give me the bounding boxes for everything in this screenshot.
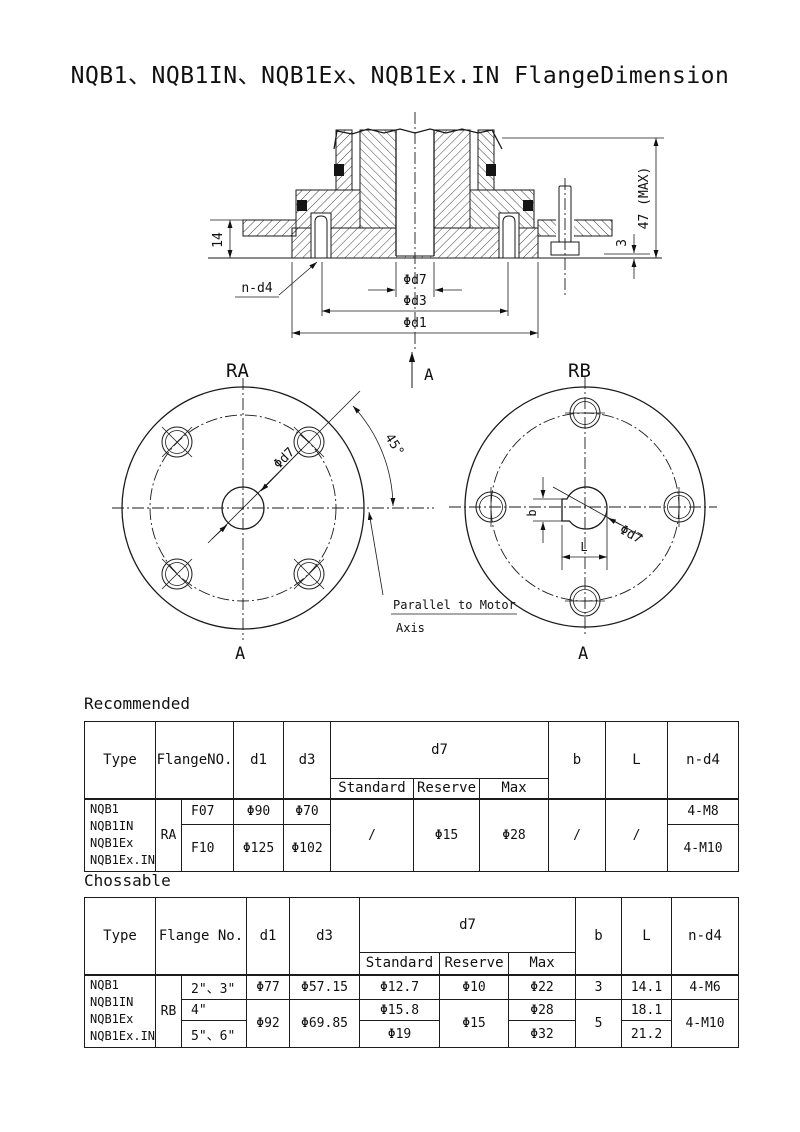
rec-standard: / xyxy=(331,799,414,872)
cho-row3-l: 21.2 xyxy=(622,1021,672,1048)
rec-f07-nd4: 4-M8 xyxy=(668,799,739,825)
rb-dim-l: L xyxy=(562,511,607,570)
rec-header-reserve: Reserve xyxy=(414,779,480,799)
rec-header-d3: d3 xyxy=(284,722,331,799)
cho-row3-standard: Φ19 xyxy=(360,1021,440,1048)
rec-max: Φ28 xyxy=(480,799,549,872)
rec-f10-nd4: 4-M10 xyxy=(668,825,739,872)
rec-b: / xyxy=(549,799,606,872)
dim-phi-d7-label: Φd7 xyxy=(403,273,426,288)
rec-header-l: L xyxy=(606,722,668,799)
rec-header-d1: d1 xyxy=(234,722,284,799)
seal-lower-right xyxy=(523,200,533,211)
hub-right xyxy=(434,130,470,228)
type-line: NQB1IN xyxy=(90,994,155,1011)
ra-phi-d7-label: Φd7 xyxy=(271,445,298,472)
seal-lower-left xyxy=(297,200,307,211)
cho-row3-flange: 5"、6" xyxy=(182,1021,247,1048)
ra-title: RA xyxy=(226,360,249,382)
cross-section-view: 14 n-d4 Φd7 Φd3 xyxy=(208,112,664,388)
cho-header-n-d4: n-d4 xyxy=(672,898,739,975)
technical-drawing: 14 n-d4 Φd7 Φd3 xyxy=(0,0,800,690)
dim-3-label: 3 xyxy=(615,239,630,247)
cho-rows23-reserve: Φ15 xyxy=(440,1000,509,1048)
cho-row1-max: Φ22 xyxy=(509,975,576,1000)
cho-header-b: b xyxy=(576,898,622,975)
type-line: NQB1Ex xyxy=(90,835,155,852)
parallel-note-line1: Parallel to Motor xyxy=(393,598,516,612)
table-row: 5"、6" Φ19 Φ32 21.2 xyxy=(85,1021,739,1048)
parallel-note-line2: Axis xyxy=(396,621,425,635)
cho-row1-flange: 2"、3" xyxy=(182,975,247,1000)
cho-type-cell: NQB1 NQB1IN NQB1Ex NQB1Ex.IN xyxy=(85,975,156,1048)
dim-3: 3 xyxy=(604,234,650,279)
housing-upper-left xyxy=(336,130,352,190)
cho-row1-reserve: Φ10 xyxy=(440,975,509,1000)
cho-header-type: Type xyxy=(85,898,156,975)
rb-dim-l-label: L xyxy=(580,540,587,554)
recommended-caption: Recommended xyxy=(84,694,190,713)
cho-header-flange-no: Flange No. xyxy=(156,898,247,975)
rec-header-standard: Standard xyxy=(331,779,414,799)
bolt-left xyxy=(315,216,327,258)
cho-header-l: L xyxy=(622,898,672,975)
parallel-note: Parallel to Motor Axis xyxy=(369,512,517,635)
seal-upper-right xyxy=(486,164,496,176)
type-line: NQB1Ex xyxy=(90,1011,155,1028)
cho-row1-b: 3 xyxy=(576,975,622,1000)
rec-header-d7: d7 xyxy=(331,722,549,779)
mount-tab-right xyxy=(538,220,612,236)
rec-f10-d3: Φ102 xyxy=(284,825,331,872)
cho-rows23-b: 5 xyxy=(576,1000,622,1048)
rb-dim-phi-d7: Φd7 xyxy=(553,487,645,547)
document-page: NQB1、NQB1IN、NQB1Ex、NQB1Ex.IN FlangeDimen… xyxy=(0,0,800,1132)
rb-view: RB b xyxy=(449,360,717,664)
type-line: NQB1Ex.IN xyxy=(90,1028,155,1045)
dim-14: 14 xyxy=(210,220,247,258)
type-line: NQB1 xyxy=(90,977,155,994)
cho-header-standard: Standard xyxy=(360,953,440,975)
rec-header-b: b xyxy=(549,722,606,799)
recommended-table: Type FlangeNO. d1 d3 d7 b L n-d4 Standar… xyxy=(84,721,739,872)
n-d4-label: n-d4 xyxy=(241,281,272,296)
rec-group-cell: RA xyxy=(156,799,182,872)
dim-14-label: 14 xyxy=(211,232,226,248)
cho-header-d3: d3 xyxy=(290,898,360,975)
cho-row2-max: Φ28 xyxy=(509,1000,576,1021)
table-row: 4" Φ92 Φ69.85 Φ15.8 Φ15 Φ28 5 18.1 4-M10 xyxy=(85,1000,739,1021)
chossable-table: Type Flange No. d1 d3 d7 b L n-d4 Standa… xyxy=(84,897,739,1048)
table-row: NQB1 NQB1IN NQB1Ex NQB1Ex.IN RB 2"、3" Φ7… xyxy=(85,975,739,1000)
rec-type-cell: NQB1 NQB1IN NQB1Ex NQB1Ex.IN xyxy=(85,799,156,872)
cho-row2-flange: 4" xyxy=(182,1000,247,1021)
rec-header-type: Type xyxy=(85,722,156,799)
dim-phi-d1-label: Φd1 xyxy=(403,316,426,331)
cho-rows23-d3: Φ69.85 xyxy=(290,1000,360,1048)
cho-header-d7: d7 xyxy=(360,898,576,953)
rec-flange-f07: F07 xyxy=(182,799,234,825)
type-line: NQB1Ex.IN xyxy=(90,852,155,869)
type-line: NQB1IN xyxy=(90,818,155,835)
cho-row1-nd4: 4-M6 xyxy=(672,975,739,1000)
cho-rows23-d1: Φ92 xyxy=(247,1000,290,1048)
rb-dim-b-label: b xyxy=(525,509,539,516)
rb-phi-d7-label: Φd7 xyxy=(617,523,645,548)
cho-group-cell: RB xyxy=(156,975,182,1048)
ra-angle-45: 45° xyxy=(353,406,407,506)
hub-left xyxy=(360,130,396,228)
table-row: NQB1 NQB1IN NQB1Ex NQB1Ex.IN RA F07 Φ90 … xyxy=(85,799,739,825)
rec-f10-d1: Φ125 xyxy=(234,825,284,872)
rec-l: / xyxy=(606,799,668,872)
rec-f07-d3: Φ70 xyxy=(284,799,331,825)
rb-bottom-label: A xyxy=(578,644,588,664)
ra-dim-phi-d7: Φd7 xyxy=(208,445,302,543)
mount-tab-left xyxy=(243,220,296,236)
rec-header-n-d4: n-d4 xyxy=(668,722,739,799)
rec-f07-d1: Φ90 xyxy=(234,799,284,825)
n-d4-callout: n-d4 xyxy=(235,262,317,297)
type-line: NQB1 xyxy=(90,801,155,818)
cho-row3-max: Φ32 xyxy=(509,1021,576,1048)
cho-row1-d1: Φ77 xyxy=(247,975,290,1000)
cho-header-reserve: Reserve xyxy=(440,953,509,975)
ra-view: RA Φd7 xyxy=(112,360,517,664)
cho-row1-standard: Φ12.7 xyxy=(360,975,440,1000)
section-arrow: A xyxy=(412,352,434,388)
rec-header-max: Max xyxy=(480,779,549,799)
dim-47-label: 47 (MAX) xyxy=(637,167,652,230)
cho-header-d1: d1 xyxy=(247,898,290,975)
ra-angle-label: 45° xyxy=(381,431,406,459)
ra-bottom-label: A xyxy=(235,644,245,664)
rec-flange-f10: F10 xyxy=(182,825,234,872)
rec-reserve: Φ15 xyxy=(414,799,480,872)
cho-row2-l: 18.1 xyxy=(622,1000,672,1021)
bolt-right xyxy=(503,216,515,258)
section-arrow-label: A xyxy=(424,365,434,384)
dim-phi-d3-label: Φd3 xyxy=(403,294,426,309)
seal-upper-left xyxy=(334,164,344,176)
chossable-caption: Chossable xyxy=(84,871,171,890)
cho-row1-d3: Φ57.15 xyxy=(290,975,360,1000)
rb-center-hole-keyway xyxy=(562,487,607,529)
rb-title: RB xyxy=(568,360,591,382)
rec-header-flange-no: FlangeNO. xyxy=(156,722,234,799)
cho-row2-standard: Φ15.8 xyxy=(360,1000,440,1021)
housing-upper-right xyxy=(478,130,494,190)
cho-header-max: Max xyxy=(509,953,576,975)
cho-rows23-nd4: 4-M10 xyxy=(672,1000,739,1048)
cho-row1-l: 14.1 xyxy=(622,975,672,1000)
